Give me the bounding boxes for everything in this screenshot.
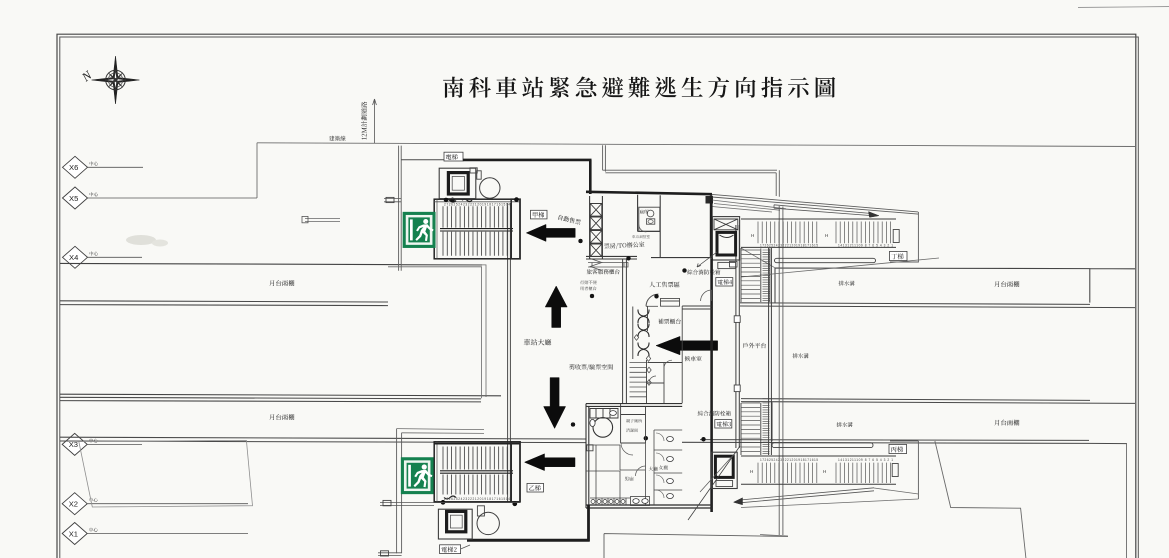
svg-text:H: H (751, 233, 754, 238)
svg-text:H: H (825, 233, 828, 238)
svg-text:X4: X4 (69, 253, 78, 262)
svg-text:17262524232221201918171615: 17262524232221201918171615 (760, 458, 818, 462)
svg-text:14131211109 8 7 6 5 4 3 2 1: 14131211109 8 7 6 5 4 3 2 1 (838, 244, 893, 248)
svg-text:H: H (823, 469, 826, 474)
svg-text:2726252423222120191817161514: 2726252423222120191817161514 (444, 202, 510, 206)
svg-text:2726252423222120191817161514: 2726252423222120191817161514 (444, 497, 510, 501)
svg-text:X1: X1 (69, 529, 78, 538)
svg-text:17262524232221201918171615: 17262524232221201918171615 (760, 244, 818, 248)
svg-text:X6: X6 (69, 163, 78, 172)
svg-text:X2: X2 (69, 500, 78, 509)
svg-text:H: H (750, 469, 753, 474)
svg-text:14131211109 8 7 6 5 4 3 2 1: 14131211109 8 7 6 5 4 3 2 1 (838, 458, 893, 462)
svg-text:X5: X5 (69, 194, 78, 203)
